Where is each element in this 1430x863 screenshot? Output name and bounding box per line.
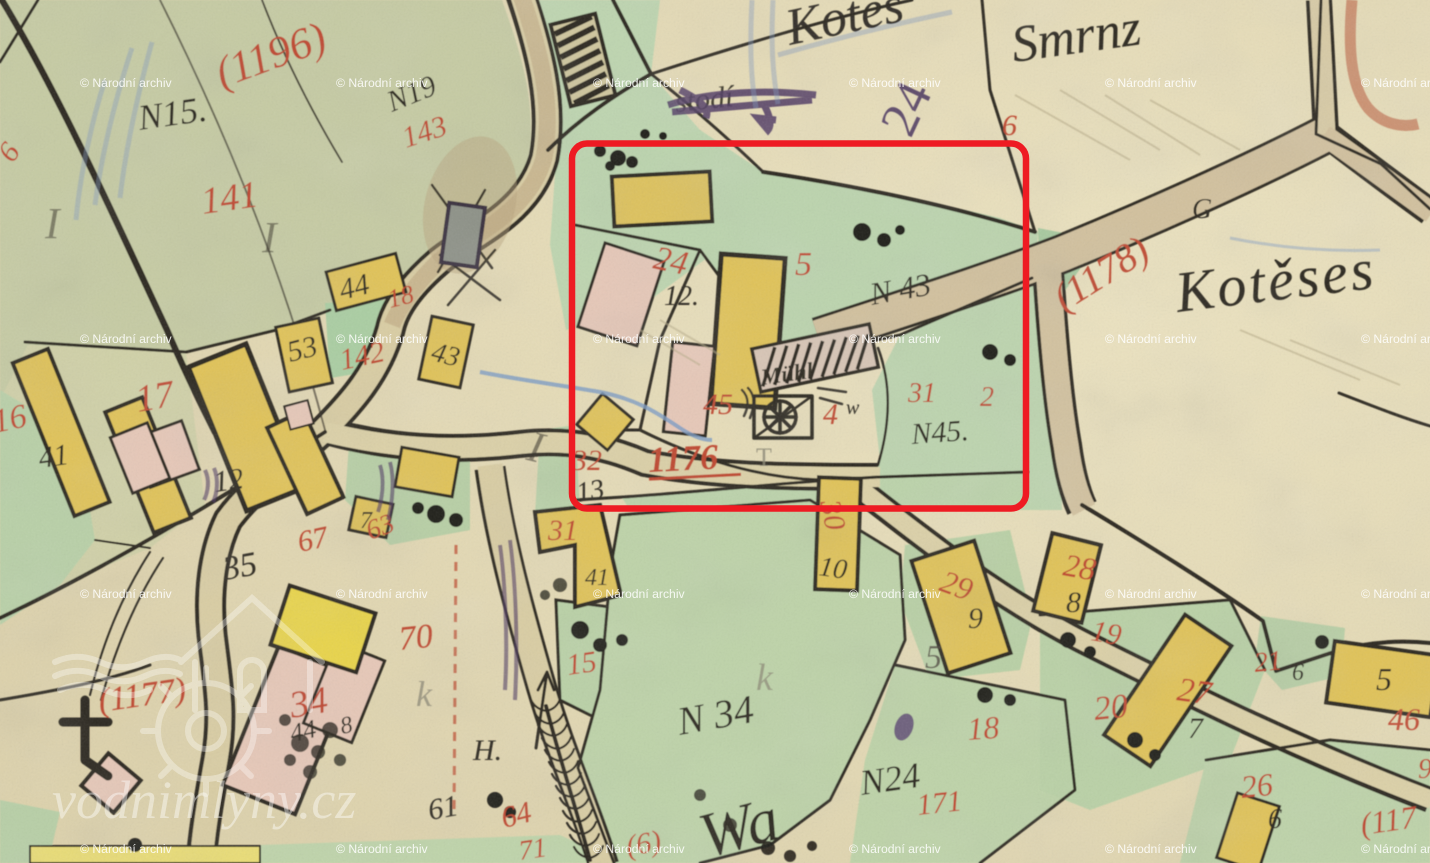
svg-text:© Národní archiv: © Národní archiv bbox=[593, 332, 686, 346]
svg-text:© Národní archiv: © Národní archiv bbox=[1105, 332, 1198, 346]
svg-text:© Národní archiv: © Národní archiv bbox=[80, 842, 173, 856]
svg-text:© Národní archiv: © Národní archiv bbox=[593, 842, 686, 856]
svg-text:© Národní archiv: © Národní archiv bbox=[593, 587, 686, 601]
svg-text:© Národní archiv: © Národní archiv bbox=[1105, 587, 1198, 601]
svg-text:© Národní archiv: © Národní archiv bbox=[336, 587, 429, 601]
svg-text:© Národní archiv: © Národní archiv bbox=[80, 332, 173, 346]
svg-text:© Národní archiv: © Národní archiv bbox=[80, 76, 173, 90]
svg-text:© Národní archiv: © Národní archiv bbox=[849, 332, 942, 346]
svg-text:© Národní archiv: © Národní archiv bbox=[1361, 76, 1430, 90]
svg-text:© Národní archiv: © Národní archiv bbox=[849, 76, 942, 90]
svg-text:© Národní archiv: © Národní archiv bbox=[1361, 842, 1430, 856]
svg-text:© Národní archiv: © Národní archiv bbox=[1361, 587, 1430, 601]
svg-text:© Národní archiv: © Národní archiv bbox=[336, 842, 429, 856]
svg-text:vodnimlyny.cz: vodnimlyny.cz bbox=[52, 770, 356, 830]
svg-text:© Národní archiv: © Národní archiv bbox=[593, 76, 686, 90]
svg-text:© Národní archiv: © Národní archiv bbox=[1105, 842, 1198, 856]
svg-text:© Národní archiv: © Národní archiv bbox=[80, 587, 173, 601]
svg-text:© Národní archiv: © Národní archiv bbox=[1361, 332, 1430, 346]
svg-text:© Národní archiv: © Národní archiv bbox=[849, 842, 942, 856]
svg-text:© Národní archiv: © Národní archiv bbox=[849, 587, 942, 601]
svg-text:© Národní archiv: © Národní archiv bbox=[336, 76, 429, 90]
svg-text:© Národní archiv: © Národní archiv bbox=[336, 332, 429, 346]
svg-text:© Národní archiv: © Národní archiv bbox=[1105, 76, 1198, 90]
